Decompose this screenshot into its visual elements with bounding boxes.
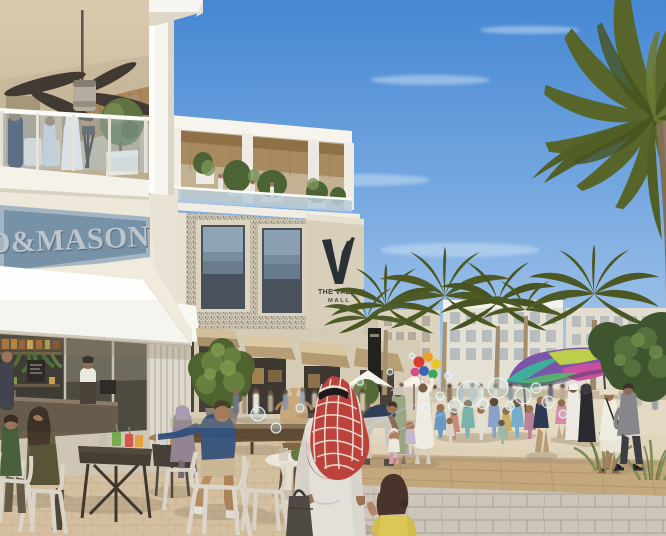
svg-text:MALL: MALL	[328, 298, 351, 304]
